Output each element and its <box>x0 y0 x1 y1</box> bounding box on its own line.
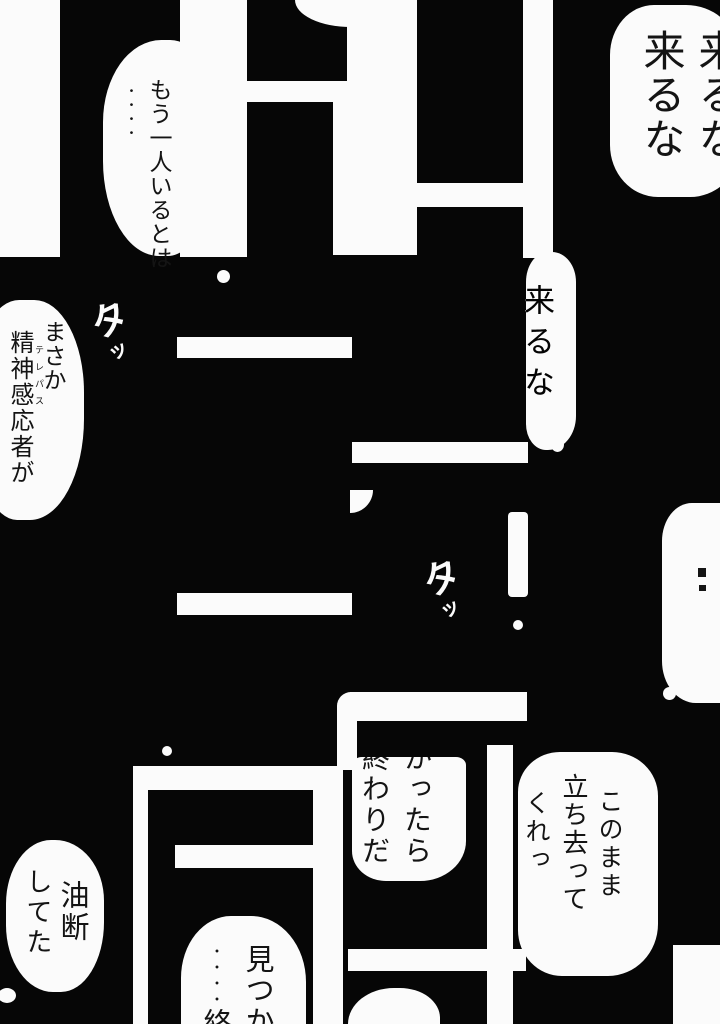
bubble-tail-dot-right-edge <box>663 687 676 700</box>
bubble-text: 来るな <box>640 29 682 161</box>
panel-gutter-top-gap-b <box>415 183 525 207</box>
clipped-text-fragment <box>699 585 706 591</box>
panel-gutter-corner-br <box>673 945 720 1024</box>
bubble-text: 終わりだ <box>360 757 388 867</box>
clipped-text-fragment <box>698 568 706 577</box>
panel-gutter-mid-strip <box>508 512 528 597</box>
bubble-text: 終 <box>199 1008 233 1024</box>
bubble-text: このまま <box>597 788 622 900</box>
speech-bubble-yudan: 油断 してた <box>6 840 104 992</box>
panel-gutter-ladder-rail-mid <box>313 766 343 1024</box>
bubble-text: まさか <box>40 320 63 392</box>
panel-gutter-h1 <box>350 692 527 721</box>
bubble-tail-dot-yudan <box>0 988 16 1003</box>
sfx-text-small: ッ <box>100 338 131 367</box>
bubble-tail-dot-ladder <box>162 746 172 756</box>
bubble-tail-dot-mid <box>513 620 523 630</box>
bubble-tail-dot-top-left <box>217 270 230 283</box>
panel-gutter-mid-bar3 <box>177 593 352 615</box>
furigana-telepath: テレパス <box>33 345 42 413</box>
bubble-text: かったら <box>402 757 430 867</box>
speech-bubble-top-left: もう一人いるとは ・・・・ <box>103 40 215 256</box>
sfx-text-small: ッ <box>432 596 463 625</box>
panel-corner-curve <box>295 0 351 27</box>
panel-gutter-right-rail <box>487 745 513 1024</box>
bubble-text-ellipsis: ・・・・ <box>123 84 136 140</box>
panel-gutter-top-v3 <box>523 0 553 258</box>
speech-bubble-owari: かったら 終わりだ <box>352 757 466 881</box>
speech-bubble-telepath: まさか 精神感応者が テレパス <box>0 300 84 520</box>
bubble-text-ellipsis: ・・・・ <box>208 944 224 1008</box>
speech-bubble-top-right: 来るな 来るな <box>610 5 720 197</box>
bubble-text: 来るな <box>695 29 720 161</box>
sfx-footstep-2: タッ <box>413 553 473 623</box>
bubble-tail-dot-mid-come <box>551 437 564 452</box>
bubble-text: 見つか <box>243 944 272 1024</box>
panel-gutter-left-edge <box>0 0 60 257</box>
bubble-text: 立ち去って <box>560 773 586 913</box>
sfx-text: タ <box>78 293 134 346</box>
bubble-text: くれっ <box>524 790 549 874</box>
sfx-footstep-1: タッ <box>81 295 141 365</box>
speech-bubble-right-edge <box>662 503 720 703</box>
panel-gutter-ladder-rung1 <box>133 766 313 790</box>
panel-gutter-mid-wedge <box>350 490 373 513</box>
bubble-text: してた <box>24 868 50 958</box>
panel-gutter-mid-bar2 <box>352 442 528 463</box>
sfx-text: タ <box>410 551 466 604</box>
speech-bubble-leave: このまま 立ち去って くれっ <box>518 752 658 976</box>
panel-gutter-top-v2 <box>347 0 417 255</box>
speech-bubble-bottom-blank <box>348 988 440 1024</box>
bubble-text: 精神感応者が <box>8 330 32 486</box>
speech-bubble-mitsuka: 見つか ・・・・終 <box>181 916 306 1024</box>
panel-gutter-top-gap-a <box>244 81 352 102</box>
bubble-text: ・・・・終 <box>201 944 230 1024</box>
panel-gutter-ladder-rung2 <box>175 845 313 868</box>
bubble-text: 油断 <box>58 880 87 944</box>
manga-page: 来るな 来るな もう一人いるとは ・・・・ まさか 精神感応者が テレパス タッ… <box>0 0 720 1024</box>
panel-gutter-mid-bar1 <box>177 337 352 358</box>
panel-gutter-ladder-rail-left <box>133 766 148 1024</box>
bubble-text: もう一人いるとは <box>146 78 169 270</box>
panel-gutter-top-v2b <box>333 101 349 255</box>
bubble-text-inverted: 来るな <box>520 284 551 407</box>
